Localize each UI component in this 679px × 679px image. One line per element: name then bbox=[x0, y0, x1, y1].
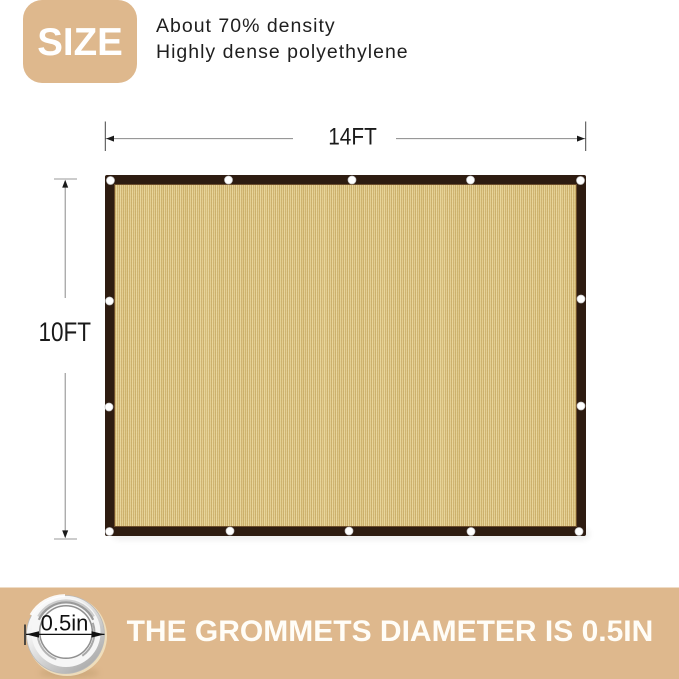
svg-text:0.5in: 0.5in bbox=[41, 611, 89, 636]
svg-text:10FT: 10FT bbox=[39, 319, 92, 348]
svg-text:14FT: 14FT bbox=[328, 122, 377, 150]
svg-text:THE GROMMETS DIAMETER IS 0.5IN: THE GROMMETS DIAMETER IS 0.5IN bbox=[127, 615, 654, 648]
